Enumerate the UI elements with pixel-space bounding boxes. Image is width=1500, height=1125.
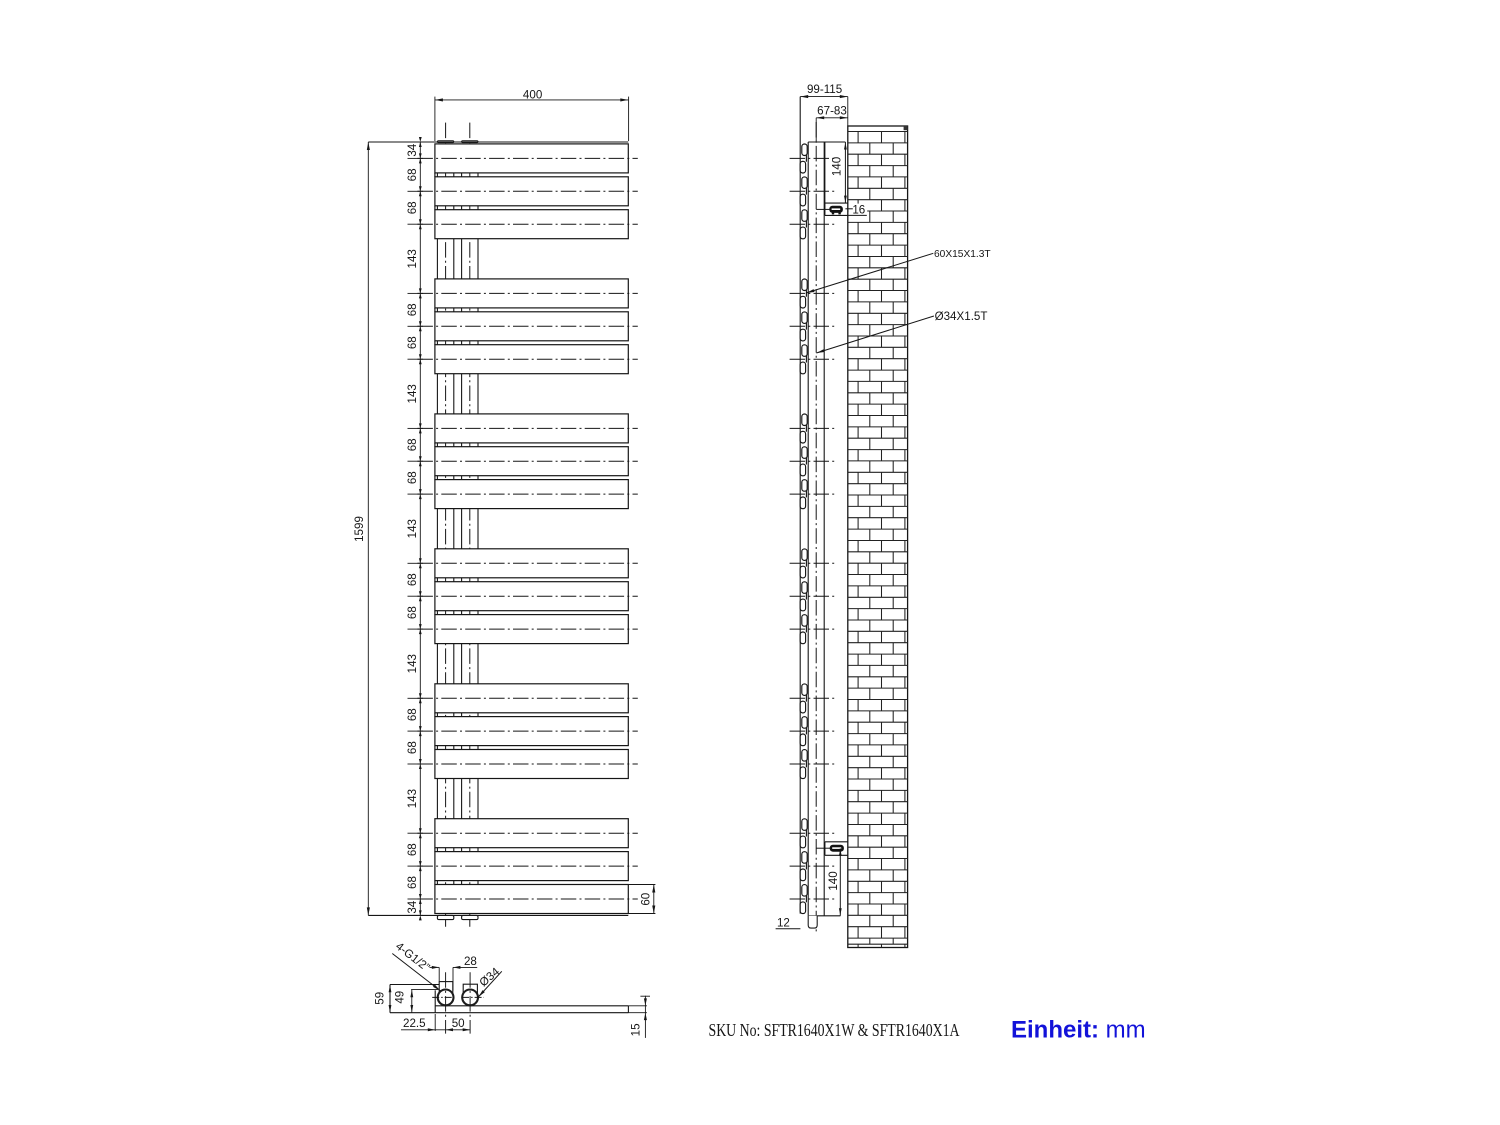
svg-text:143: 143 bbox=[406, 654, 419, 673]
svg-text:143: 143 bbox=[406, 519, 419, 538]
svg-text:16: 16 bbox=[852, 203, 865, 216]
svg-text:140: 140 bbox=[827, 871, 840, 890]
svg-text:68: 68 bbox=[406, 741, 419, 754]
svg-text:60X15X1.3T: 60X15X1.3T bbox=[934, 249, 991, 260]
svg-text:99-115: 99-115 bbox=[807, 83, 842, 96]
svg-text:59: 59 bbox=[373, 992, 386, 1005]
svg-text:143: 143 bbox=[406, 384, 419, 403]
svg-text:12: 12 bbox=[777, 917, 790, 930]
svg-text:SKU No: SFTR1640X1W & SFTR1640: SKU No: SFTR1640X1W & SFTR1640X1A bbox=[709, 1020, 960, 1040]
svg-text:68: 68 bbox=[406, 168, 419, 181]
svg-text:34: 34 bbox=[406, 900, 419, 913]
svg-text:28: 28 bbox=[464, 955, 477, 968]
svg-text:68: 68 bbox=[406, 438, 419, 451]
svg-text:68: 68 bbox=[406, 573, 419, 586]
svg-text:67-83: 67-83 bbox=[817, 105, 847, 118]
svg-text:143: 143 bbox=[406, 249, 419, 268]
svg-text:400: 400 bbox=[523, 88, 542, 101]
svg-text:15: 15 bbox=[630, 1023, 643, 1036]
svg-text:68: 68 bbox=[406, 843, 419, 856]
svg-text:68: 68 bbox=[406, 876, 419, 889]
svg-text:22.5: 22.5 bbox=[403, 1017, 426, 1030]
svg-text:34: 34 bbox=[406, 143, 419, 156]
svg-text:140: 140 bbox=[830, 157, 843, 176]
svg-text:50: 50 bbox=[452, 1017, 465, 1030]
svg-text:68: 68 bbox=[406, 708, 419, 721]
svg-text:60: 60 bbox=[640, 893, 653, 906]
svg-text:68: 68 bbox=[406, 336, 419, 349]
svg-text:68: 68 bbox=[406, 303, 419, 316]
svg-text:68: 68 bbox=[406, 201, 419, 214]
svg-text:68: 68 bbox=[406, 471, 419, 484]
svg-text:Einheit: mm: Einheit: mm bbox=[1011, 1017, 1146, 1044]
svg-text:68: 68 bbox=[406, 606, 419, 619]
svg-text:49: 49 bbox=[394, 991, 407, 1004]
svg-text:1599: 1599 bbox=[353, 516, 366, 542]
svg-text:Ø34X1.5T: Ø34X1.5T bbox=[935, 310, 988, 323]
svg-text:143: 143 bbox=[406, 789, 419, 808]
